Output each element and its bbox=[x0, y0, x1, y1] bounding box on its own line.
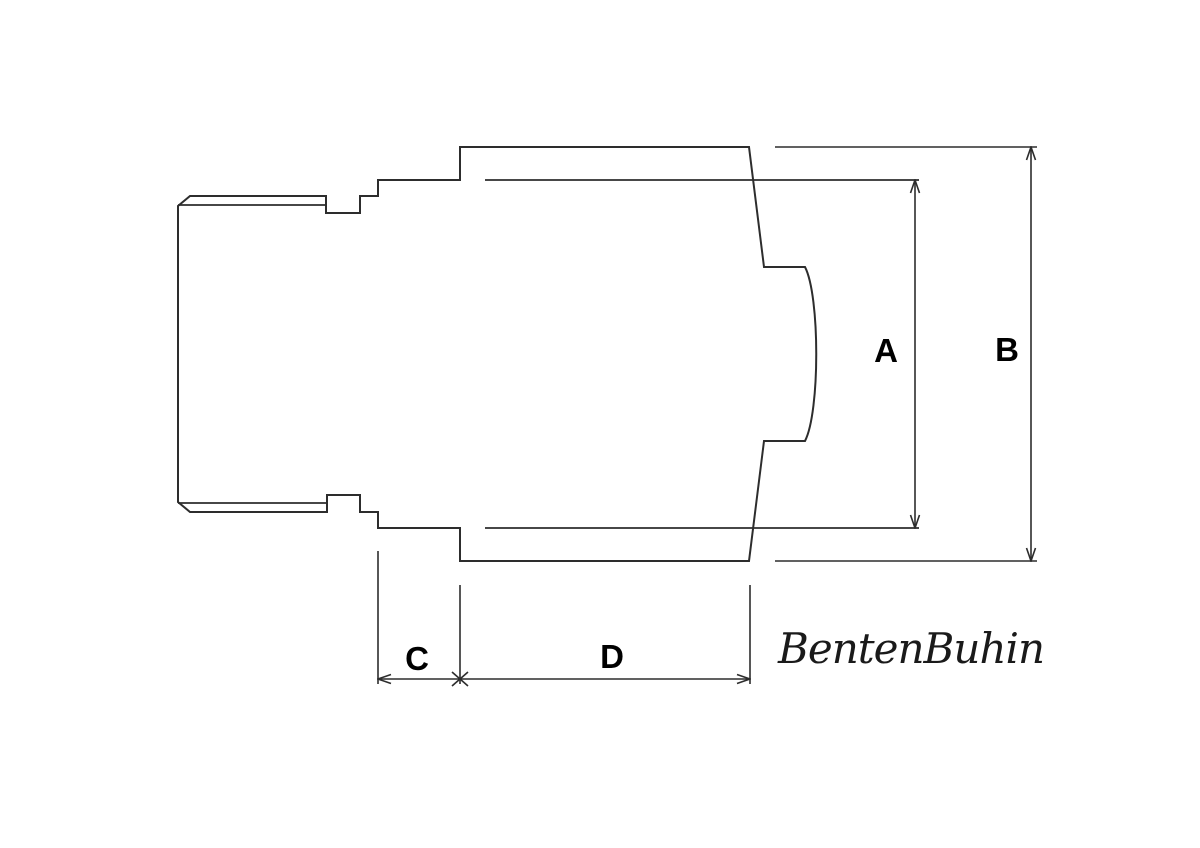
drawing-canvas: A B C D BentenBuhin bbox=[0, 0, 1200, 848]
dim-b-label: B bbox=[995, 331, 1019, 368]
dim-d-label: D bbox=[600, 638, 624, 675]
dim-c-label: C bbox=[405, 640, 429, 677]
watermark-text: BentenBuhin bbox=[777, 624, 1044, 673]
part-outline bbox=[178, 147, 816, 561]
technical-drawing: A B C D BentenBuhin bbox=[0, 0, 1200, 848]
dim-a-label: A bbox=[874, 332, 898, 369]
